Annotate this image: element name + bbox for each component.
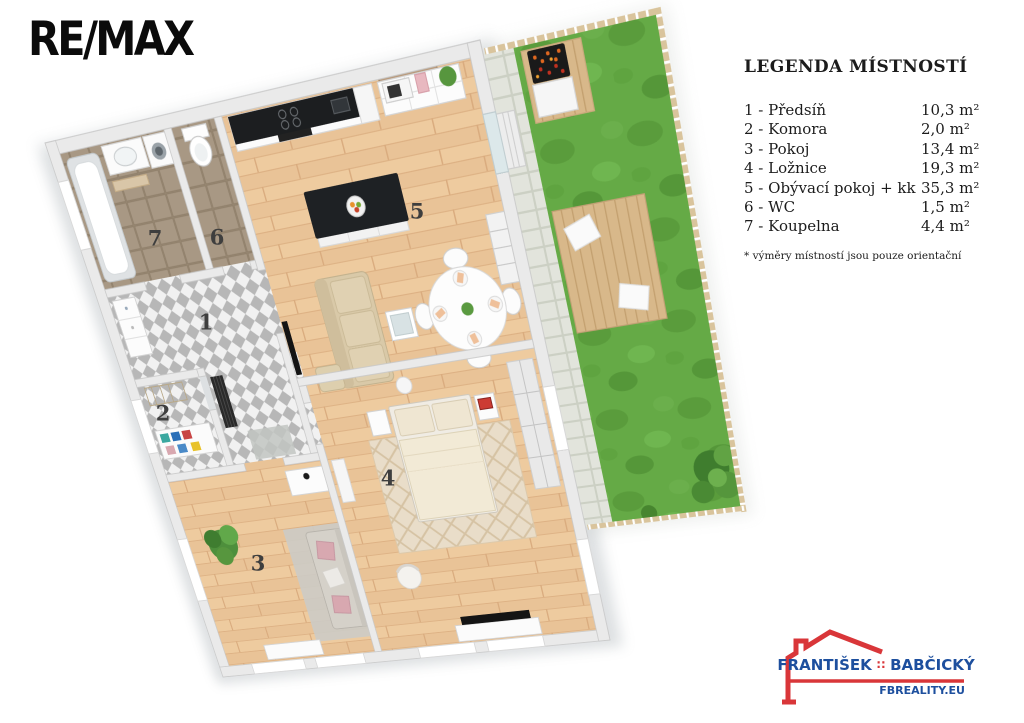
legend-footnote: * výměry místností jsou pouze orientační: [744, 250, 1006, 262]
legend-room-area: 10,3 m²: [921, 101, 1006, 120]
floorplan-3d: [45, 40, 610, 677]
legend-room-area: 35,3 m²: [921, 179, 1006, 198]
legend-room-name: 1 - Předsíň: [744, 101, 921, 120]
legend-row: 7 - Koupelna 4,4 m²: [744, 217, 1006, 236]
pillow: [431, 399, 473, 431]
legend-room-area: 2,0 m²: [921, 120, 1006, 139]
room-number-5: 5: [410, 199, 425, 224]
room-number-1: 1: [199, 310, 214, 335]
legend-room-name: 7 - Koupelna: [744, 217, 921, 236]
legend-title: LEGENDA MÍSTNOSTÍ: [744, 57, 1006, 77]
broker-name: FRANTIŠEK ∷ BABČICKÝ: [786, 656, 966, 674]
floorplan-page: RE/MAX: [0, 0, 1024, 723]
legend-row: 6 - WC 1,5 m²: [744, 198, 1006, 217]
legend-row: 3 - Pokoj 13,4 m²: [744, 140, 1006, 159]
logo-separator-icon: ∷: [877, 659, 885, 671]
broker-last-name: BABČICKÝ: [890, 656, 975, 674]
broker-logo: FRANTIŠEK ∷ BABČICKÝ FBREALITY.EU: [770, 614, 975, 710]
legend-room-area: 13,4 m²: [921, 140, 1006, 159]
legend-room-area: 19,3 m²: [921, 159, 1006, 178]
room-number-6: 6: [210, 225, 225, 250]
legend-row: 5 - Obývací pokoj + kk 35,3 m²: [744, 179, 1006, 198]
legend-row: 2 - Komora 2,0 m²: [744, 120, 1006, 139]
legend-room-area: 4,4 m²: [921, 217, 1006, 236]
legend-row: 1 - Předsíň 10,3 m²: [744, 101, 1006, 120]
legend-row: 4 - Ložnice 19,3 m²: [744, 159, 1006, 178]
legend-room-name: 6 - WC: [744, 198, 921, 217]
remax-logo: RE/MAX: [28, 12, 192, 67]
legend-room-name: 5 - Obývací pokoj + kk: [744, 179, 921, 198]
floorplan-svg: [45, 0, 782, 710]
room-number-3: 3: [251, 551, 266, 576]
kitchen-sink: [331, 97, 350, 114]
legend-room-name: 4 - Ložnice: [744, 159, 921, 178]
room-number-4: 4: [381, 466, 396, 491]
room-legend: LEGENDA MÍSTNOSTÍ 1 - Předsíň 10,3 m² 2 …: [744, 57, 1006, 262]
room-number-7: 7: [148, 226, 163, 251]
broker-website: FBREALITY.EU: [850, 684, 965, 697]
broker-first-name: FRANTIŠEK: [777, 656, 871, 674]
legend-room-name: 3 - Pokoj: [744, 140, 921, 159]
legend-room-area: 1,5 m²: [921, 198, 1006, 217]
pillow: [394, 405, 435, 436]
legend-room-name: 2 - Komora: [744, 120, 921, 139]
red-radio: [478, 397, 493, 409]
room-number-2: 2: [156, 401, 171, 426]
doormat: [247, 425, 296, 460]
